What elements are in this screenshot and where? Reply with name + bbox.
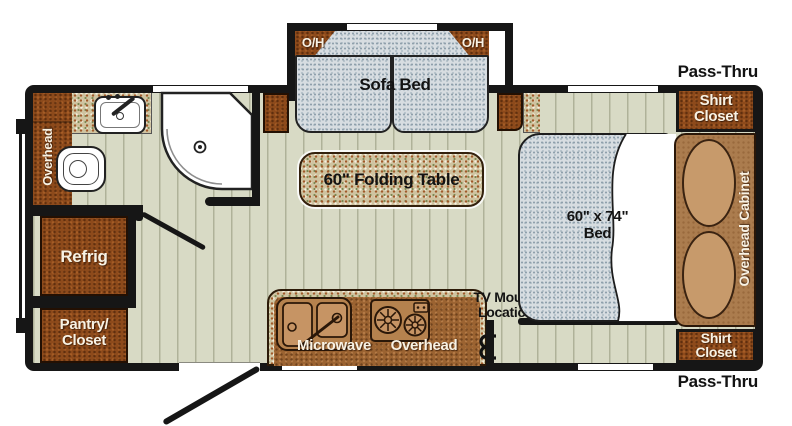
shower-pan xyxy=(162,93,252,189)
kitchen-overhead-label: Overhead xyxy=(384,337,464,354)
bath-wall-bottom xyxy=(33,205,143,216)
overhead-cabinet-label: Overhead Cabinet xyxy=(736,139,752,319)
toilet-flush xyxy=(69,160,87,178)
oh-right-label: O/H xyxy=(455,35,491,50)
bath-sink-drain xyxy=(116,112,124,120)
pillow-bottom xyxy=(682,231,736,319)
wardrobe-cabinet xyxy=(263,93,289,133)
pass-thru-top-label: Pass-Thru xyxy=(640,62,758,82)
shirt-closet-top-line2: Closet xyxy=(676,108,756,125)
refrig-label: Refrig xyxy=(40,247,128,267)
bed-label-line1: 60" x 74" xyxy=(545,208,650,225)
shower-wall-horizontal xyxy=(205,197,260,206)
window-bottom-right xyxy=(578,364,653,370)
folding-table-label: 60" Folding Table xyxy=(299,170,484,190)
window-top-right xyxy=(568,86,658,92)
pillow-top xyxy=(682,139,736,227)
pantry-label-line2: Closet xyxy=(40,332,128,349)
faucet-knob-2 xyxy=(115,94,120,99)
burner-left xyxy=(375,307,401,333)
oh-left-label: O/H xyxy=(295,35,331,50)
bedside-counter xyxy=(523,93,540,133)
bed-label-line2: Bed xyxy=(545,225,650,242)
bedside-cabinet xyxy=(497,93,523,131)
slideout-window xyxy=(347,24,437,30)
bedroom-wall-stub xyxy=(486,320,494,366)
rv-floorplan: O/H O/H Sofa Bed Overhead Refrig Pantry/… xyxy=(0,0,792,426)
cooktop-controls xyxy=(414,303,428,312)
front-contour-line xyxy=(19,133,22,320)
pantry-label-line1: Pantry/ xyxy=(40,316,128,333)
shirt-closet-bottom-line2: Closet xyxy=(676,344,756,360)
shower-wall-vertical xyxy=(252,85,260,206)
galley-wall-vertical xyxy=(128,211,136,298)
burner-right xyxy=(405,315,426,336)
galley-wall-band xyxy=(33,296,136,308)
bath-overhead-label: Overhead xyxy=(39,102,55,212)
corner-shower xyxy=(148,85,264,217)
sofa-bed-label: Sofa Bed xyxy=(315,75,475,95)
faucet-knob-1 xyxy=(106,95,111,100)
shirt-closet-top-line1: Shirt xyxy=(676,92,756,109)
microwave-label: Microwave xyxy=(284,337,384,354)
pass-thru-bottom-label: Pass-Thru xyxy=(640,372,758,392)
